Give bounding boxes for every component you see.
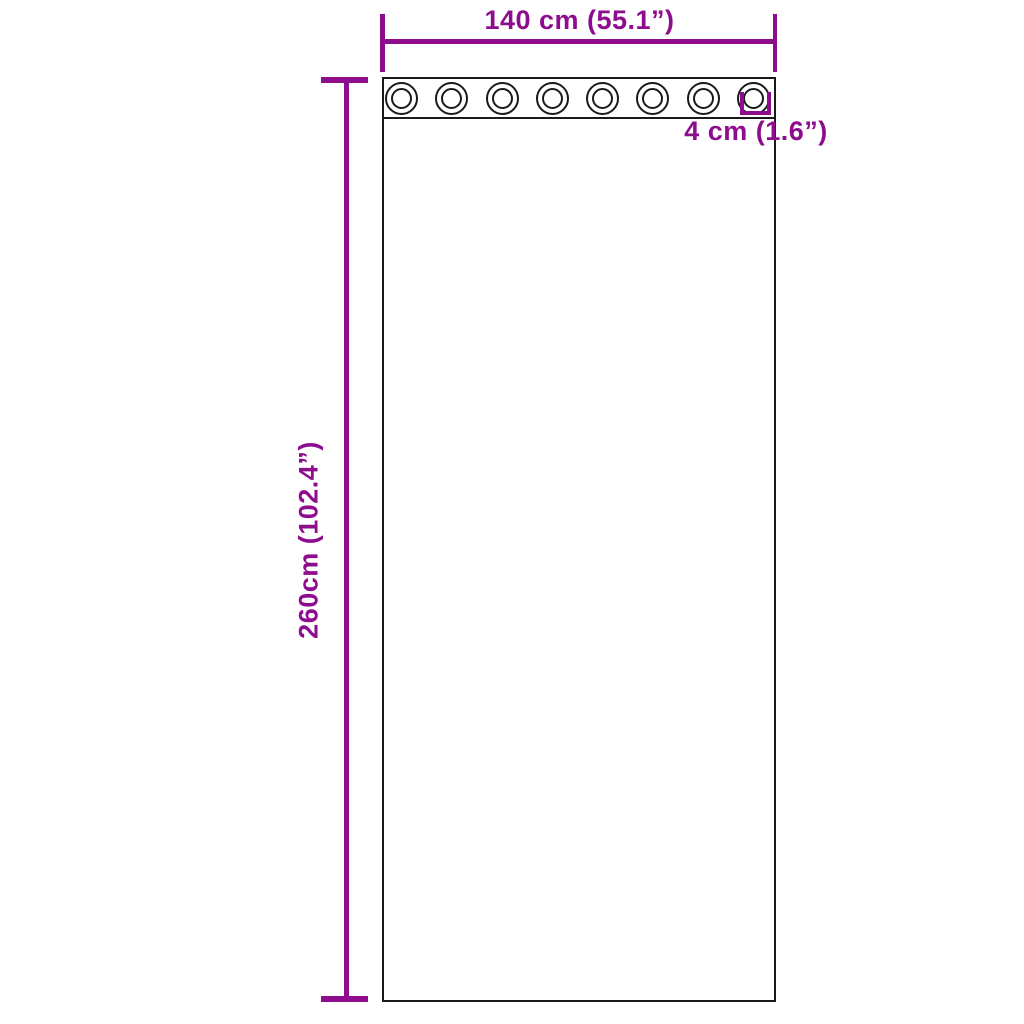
height-dimension-cap-top [321,77,368,83]
grommet-hole [743,88,764,109]
diagram-canvas: 140 cm (55.1”) 260cm (102.4”) 4 cm (1.6”… [0,0,1024,1024]
height-dimension-label: 260cm (102.4”) [294,441,325,639]
grommet-hole [592,88,613,109]
height-dimension-line [344,77,349,1002]
grommet-dimension-bar [740,111,771,115]
grommet [435,82,468,115]
width-dimension-line [382,39,777,44]
grommet-hole [391,88,412,109]
grommet-hole [693,88,714,109]
grommet [486,82,519,115]
grommet [586,82,619,115]
grommet [687,82,720,115]
grommet [385,82,418,115]
grommet-hole [642,88,663,109]
grommet-hole [492,88,513,109]
width-dimension-label: 140 cm (55.1”) [382,5,777,36]
grommet [636,82,669,115]
grommet-hole [441,88,462,109]
grommet-hole [542,88,563,109]
grommet-band [384,79,774,119]
grommet [536,82,569,115]
grommet-dimension-label: 4 cm (1.6”) [684,116,828,147]
curtain-panel [382,77,776,1002]
height-dimension-cap-bottom [321,996,368,1002]
